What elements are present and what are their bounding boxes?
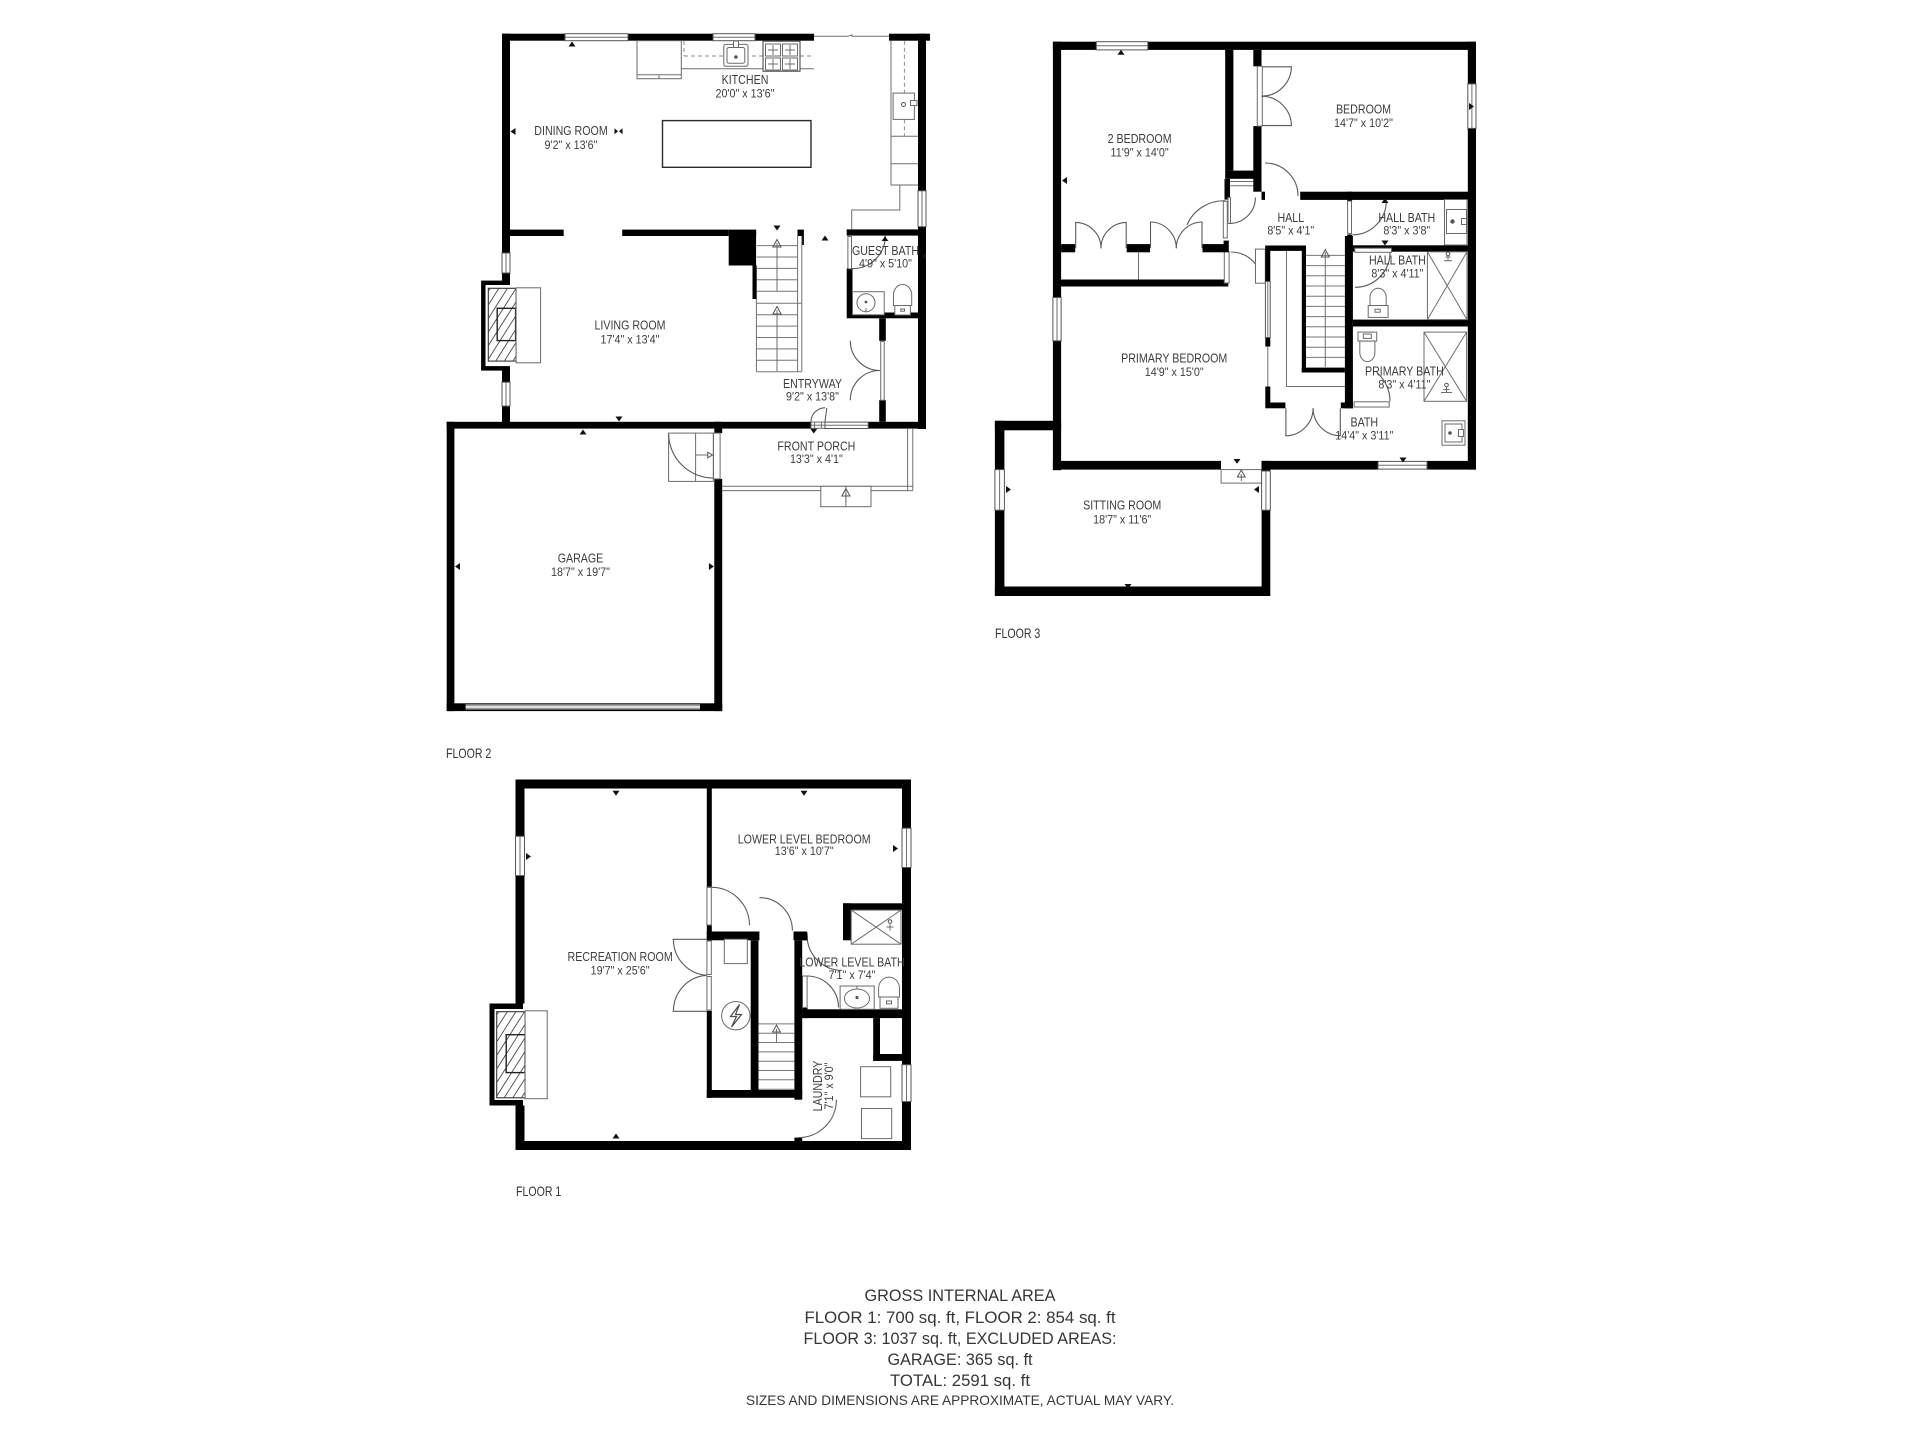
svg-text:FLOOR 3: FLOOR 3 (995, 625, 1040, 641)
svg-text:FLOOR 1: 700 sq. ft, FLOOR 2:: FLOOR 1: 700 sq. ft, FLOOR 2: 854 sq. ft (805, 1308, 1116, 1327)
svg-text:19'7" x 25'6": 19'7" x 25'6" (591, 966, 650, 978)
svg-text:GARAGE: 365 sq. ft: GARAGE: 365 sq. ft (888, 1350, 1033, 1369)
svg-text:LOWER LEVEL BATH: LOWER LEVEL BATH (799, 955, 904, 970)
svg-text:11'9" x 14'0": 11'9" x 14'0" (1111, 148, 1169, 160)
svg-text:HALL: HALL (1277, 210, 1304, 225)
svg-text:FLOOR 3: 1037 sq. ft, EXCLUDED: FLOOR 3: 1037 sq. ft, EXCLUDED AREAS: (804, 1329, 1117, 1348)
svg-text:ENTRYWAY: ENTRYWAY (783, 376, 842, 391)
svg-text:BEDROOM: BEDROOM (1336, 102, 1391, 117)
svg-text:8'3" x 3'8": 8'3" x 3'8" (1383, 226, 1430, 238)
svg-text:13'3" x 4'1": 13'3" x 4'1" (790, 454, 843, 466)
svg-text:HALL BATH: HALL BATH (1369, 253, 1426, 268)
svg-text:8'3" x 4'11": 8'3" x 4'11" (1371, 269, 1423, 281)
svg-text:FLOOR 2: FLOOR 2 (446, 745, 491, 761)
svg-text:9'2" x 13'6": 9'2" x 13'6" (545, 140, 598, 152)
svg-text:FLOOR 1: FLOOR 1 (516, 1183, 561, 1199)
svg-text:FRONT PORCH: FRONT PORCH (777, 439, 855, 454)
svg-text:13'6" x 10'7": 13'6" x 10'7" (775, 846, 834, 858)
svg-text:20'0" x 13'6": 20'0" x 13'6" (716, 89, 775, 101)
svg-text:17'4" x 13'4": 17'4" x 13'4" (601, 335, 660, 347)
svg-text:2 BEDROOM: 2 BEDROOM (1108, 131, 1172, 146)
svg-text:PRIMARY BEDROOM: PRIMARY BEDROOM (1121, 351, 1227, 366)
svg-text:RECREATION ROOM: RECREATION ROOM (568, 949, 673, 964)
svg-text:HALL BATH: HALL BATH (1378, 210, 1435, 225)
svg-text:14'4" x 3'11": 14'4" x 3'11" (1335, 431, 1393, 443)
svg-text:PRIMARY BATH: PRIMARY BATH (1365, 364, 1444, 379)
svg-text:GUEST BATH: GUEST BATH (852, 243, 919, 258)
svg-text:14'9" x 15'0": 14'9" x 15'0" (1145, 367, 1204, 379)
svg-text:LIVING ROOM: LIVING ROOM (594, 318, 665, 333)
svg-text:DINING ROOM: DINING ROOM (534, 123, 607, 138)
svg-text:9'2" x 13'8": 9'2" x 13'8" (786, 392, 839, 404)
svg-text:4'9" x 5'10": 4'9" x 5'10" (859, 259, 912, 271)
svg-text:7'1" x 9'0": 7'1" x 9'0" (824, 1063, 836, 1110)
svg-text:GROSS INTERNAL AREA: GROSS INTERNAL AREA (865, 1286, 1057, 1305)
svg-text:LAUNDRY: LAUNDRY (810, 1060, 825, 1111)
svg-text:18'7" x 11'6": 18'7" x 11'6" (1093, 515, 1151, 527)
svg-text:8'5" x 4'1": 8'5" x 4'1" (1267, 226, 1314, 238)
svg-text:LOWER LEVEL BEDROOM: LOWER LEVEL BEDROOM (738, 832, 871, 847)
svg-text:14'7" x 10'2": 14'7" x 10'2" (1334, 118, 1393, 130)
svg-text:SITTING ROOM: SITTING ROOM (1083, 498, 1161, 513)
svg-text:GARAGE: GARAGE (558, 551, 604, 566)
svg-text:SIZES AND DIMENSIONS ARE APPRO: SIZES AND DIMENSIONS ARE APPROXIMATE, AC… (746, 1392, 1174, 1408)
svg-text:BATH: BATH (1351, 415, 1379, 430)
svg-text:7'1" x 7'4": 7'1" x 7'4" (829, 970, 876, 982)
svg-text:18'7" x 19'7": 18'7" x 19'7" (551, 567, 610, 579)
svg-text:TOTAL: 2591 sq. ft: TOTAL: 2591 sq. ft (890, 1371, 1030, 1390)
svg-text:KITCHEN: KITCHEN (722, 72, 769, 87)
svg-text:8'3" x 4'11": 8'3" x 4'11" (1378, 380, 1430, 392)
